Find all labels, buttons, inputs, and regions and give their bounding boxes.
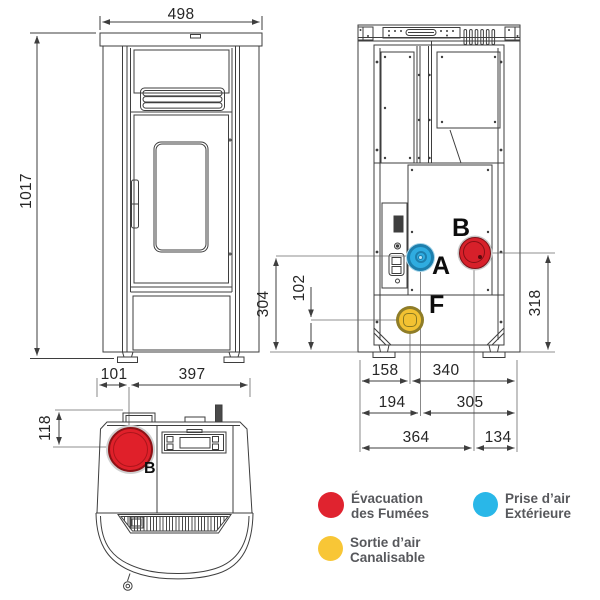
legend-line: Extérieure	[505, 507, 571, 522]
dimension-b-offset-right: 134	[485, 429, 512, 447]
dimension-f-offset-left: 158	[372, 362, 399, 380]
top-view-grille	[121, 517, 228, 531]
port-a-air-intake	[407, 244, 434, 271]
legend-item-smoke-exhaust: Évacuation des Fumées	[318, 492, 429, 521]
port-f-center	[403, 313, 417, 327]
legend-line: Sortie d’air	[350, 536, 425, 551]
legend-smoke-exhaust-label: Évacuation des Fumées	[351, 492, 429, 521]
port-f-label: F	[429, 293, 444, 318]
port-b-top-ring	[113, 432, 148, 467]
port-b-label: B	[452, 216, 470, 241]
front-view-drawing	[100, 33, 262, 363]
dimension-f-offset-right: 340	[433, 362, 460, 380]
dimension-top-offset-left: 101	[101, 366, 128, 384]
legend-line: Canalisable	[350, 551, 425, 566]
port-b-inner-ring	[463, 241, 485, 263]
dimension-a-height: 304	[255, 291, 273, 318]
port-b-detail-dot	[478, 255, 482, 259]
dimension-top-depth: 118	[37, 415, 55, 441]
port-a-label: A	[432, 254, 450, 279]
dimension-a-offset-left: 194	[379, 394, 406, 412]
legend-outside-air-label: Prise d’air Extérieure	[505, 492, 571, 521]
stove-technical-diagram: A B F B 498 1017 304 102 318 158 340 194…	[0, 0, 600, 600]
dimension-b-height: 318	[527, 290, 545, 317]
legend-line: des Fumées	[351, 507, 429, 522]
legend-ducted-air-label: Sortie d’air Canalisable	[350, 536, 425, 565]
dimension-a-offset-right: 305	[457, 394, 484, 412]
legend-item-outside-air: Prise d’air Extérieure	[473, 492, 571, 521]
legend-line: Prise d’air	[505, 492, 571, 507]
dimension-front-height: 1017	[18, 173, 36, 209]
dimension-b-offset-left: 364	[403, 429, 430, 447]
outside-air-dot-icon	[473, 492, 498, 517]
legend-line: Évacuation	[351, 492, 429, 507]
dimension-front-width: 498	[168, 6, 195, 24]
front-dimension-lines	[30, 16, 262, 359]
ducted-air-dot-icon	[318, 536, 343, 561]
legend-item-ducted-air: Sortie d’air Canalisable	[318, 536, 425, 565]
port-b-top-label: B	[144, 461, 156, 477]
port-a-center	[418, 255, 423, 260]
dimension-top-offset-right: 397	[179, 366, 206, 384]
smoke-exhaust-dot-icon	[318, 492, 344, 518]
port-f-ducted-air	[396, 306, 424, 334]
dimension-f-height: 102	[291, 275, 309, 302]
